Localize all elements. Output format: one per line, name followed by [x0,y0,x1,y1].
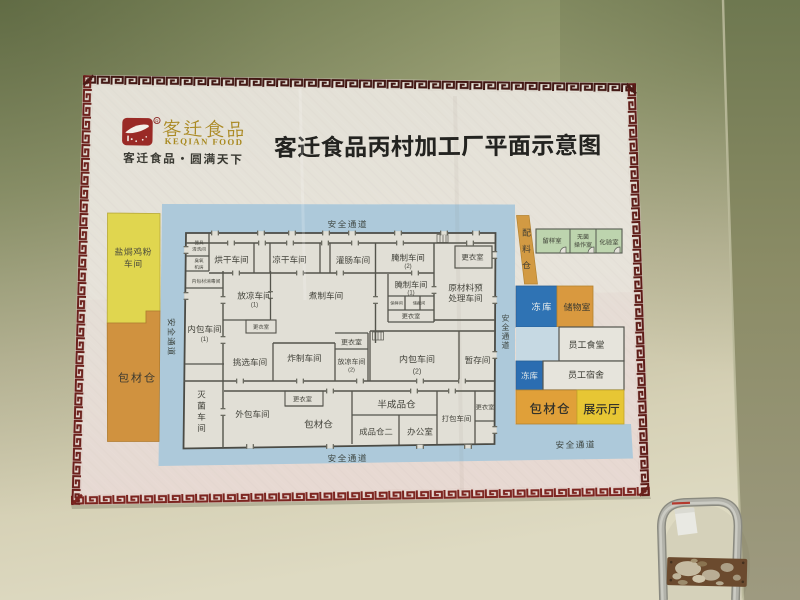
svg-text:(2): (2) [413,368,422,375]
svg-text:KEQIAN FOOD: KEQIAN FOOD [165,136,244,147]
svg-text:(1): (1) [201,336,209,343]
svg-text:(2): (2) [348,367,355,373]
svg-text:(1): (1) [251,303,258,309]
svg-text:(2): (2) [404,264,411,270]
svg-text:(1): (1) [407,291,414,297]
